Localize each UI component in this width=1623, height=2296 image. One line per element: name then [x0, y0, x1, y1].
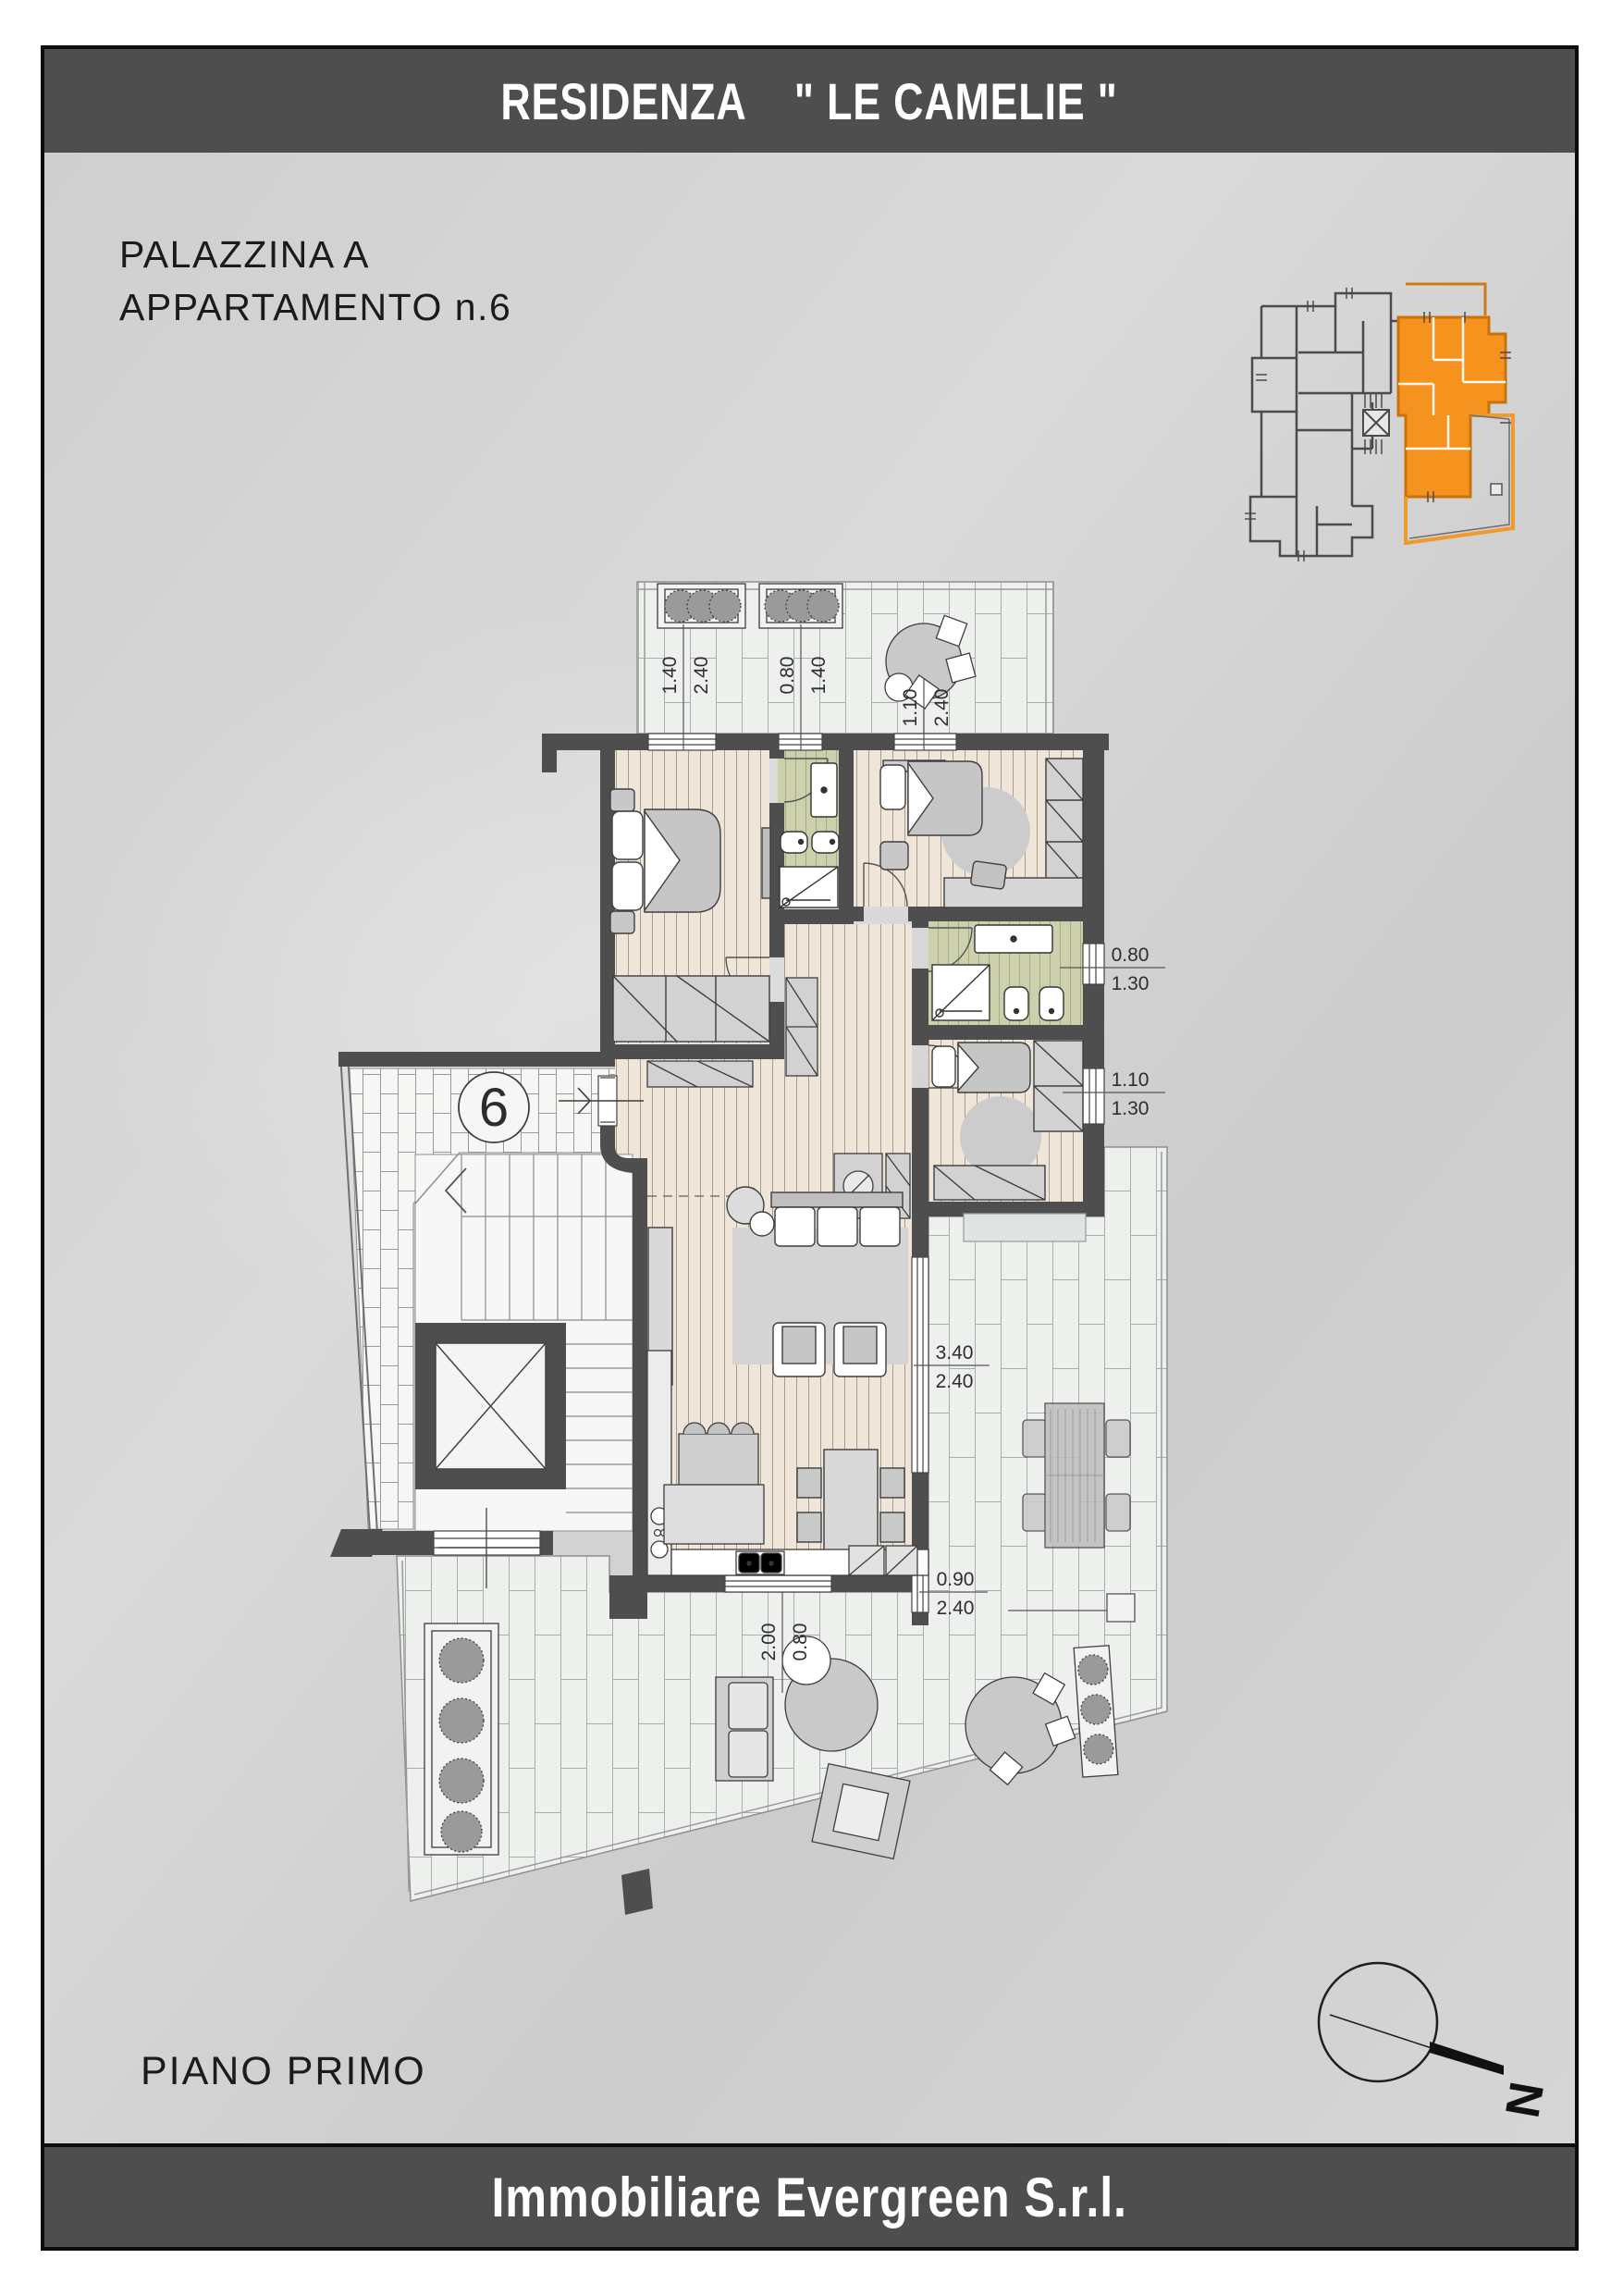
svg-text:2.40: 2.40: [931, 689, 953, 727]
svg-text:1.30: 1.30: [1112, 973, 1150, 994]
shower2: [932, 965, 990, 1020]
bedroom3-window: [1083, 1068, 1104, 1124]
armchair: [773, 1323, 825, 1376]
kitchen-sink: [736, 1551, 784, 1574]
bedroom3-wardrobe: [1034, 1041, 1083, 1131]
company-name: Immobiliare Evergreen S.r.l.: [492, 2166, 1127, 2229]
elevator: [415, 1323, 566, 1489]
page-frame: RESIDENZA " LE CAMELIE " PALAZZINA A APP…: [41, 45, 1579, 2251]
content-area: PALAZZINA A APPARTAMENTO n.6 PIANO PRIMO: [44, 153, 1575, 2147]
svg-text:3.40: 3.40: [936, 1342, 974, 1364]
balcony-window-3: [894, 734, 956, 750]
residence-title: RESIDENZA " LE CAMELIE ": [501, 71, 1118, 131]
floor-label: PIANO PRIMO: [141, 2049, 426, 2094]
svg-text:1.30: 1.30: [1112, 1098, 1150, 1119]
key-plan: [1243, 264, 1539, 574]
compass-needle: [1430, 2042, 1504, 2075]
key-plan-stair-core: [1363, 393, 1389, 454]
building-name: PALAZZINA A: [119, 228, 511, 281]
svg-text:0.90: 0.90: [937, 1569, 975, 1590]
kitchen-bar: [664, 1423, 764, 1544]
svg-text:0.80: 0.80: [1112, 944, 1150, 966]
bath2-window: [1083, 944, 1104, 984]
unit-number: 6: [479, 1078, 509, 1138]
project-label: PALAZZINA A APPARTAMENTO n.6: [119, 228, 511, 333]
svg-text:0.80: 0.80: [790, 1623, 811, 1661]
svg-text:1.10: 1.10: [1112, 1069, 1150, 1091]
svg-text:1.40: 1.40: [659, 657, 681, 695]
header-bar: RESIDENZA " LE CAMELIE ": [44, 49, 1575, 156]
kitchen-window: [725, 1575, 831, 1592]
balcony-window-1: [648, 734, 716, 750]
shower1: [780, 867, 838, 907]
planter: [658, 584, 745, 628]
bedroom2-wardrobe: [1046, 759, 1083, 883]
brochure-page: RESIDENZA " LE CAMELIE " PALAZZINA A APP…: [0, 0, 1623, 2296]
bedroom3-closet: [934, 1166, 1045, 1200]
svg-text:2.40: 2.40: [691, 657, 712, 695]
floor-plan: 6: [327, 569, 1312, 1921]
footer-bar: Immobiliare Evergreen S.r.l.: [44, 2143, 1575, 2247]
outdoor-round-table-2: [965, 1673, 1076, 1785]
compass-circle: [1319, 1963, 1437, 2081]
svg-text:2.40: 2.40: [936, 1371, 974, 1392]
svg-text:2.40: 2.40: [937, 1598, 975, 1619]
apartment-name: APPARTAMENTO n.6: [119, 281, 511, 334]
stairwell: [415, 1153, 633, 1531]
kitchen-appliances: [849, 1546, 917, 1575]
svg-text:1.10: 1.10: [900, 689, 921, 727]
master-wardrobe: [613, 976, 769, 1042]
lounge-chair: [812, 1764, 910, 1859]
svg-text:0.80: 0.80: [777, 657, 798, 695]
outdoor-sofa: [716, 1677, 773, 1781]
armchair: [834, 1323, 886, 1376]
svg-text:2.00: 2.00: [758, 1623, 780, 1661]
key-plan-highlighted-unit: [1398, 284, 1513, 543]
sofa: [771, 1192, 903, 1246]
compass-north-label: N: [1494, 2078, 1554, 2121]
compass: N: [1293, 1933, 1570, 2146]
planter: [759, 584, 842, 628]
svg-text:1.40: 1.40: [808, 657, 830, 695]
terrace-planter-left: [424, 1623, 498, 1855]
